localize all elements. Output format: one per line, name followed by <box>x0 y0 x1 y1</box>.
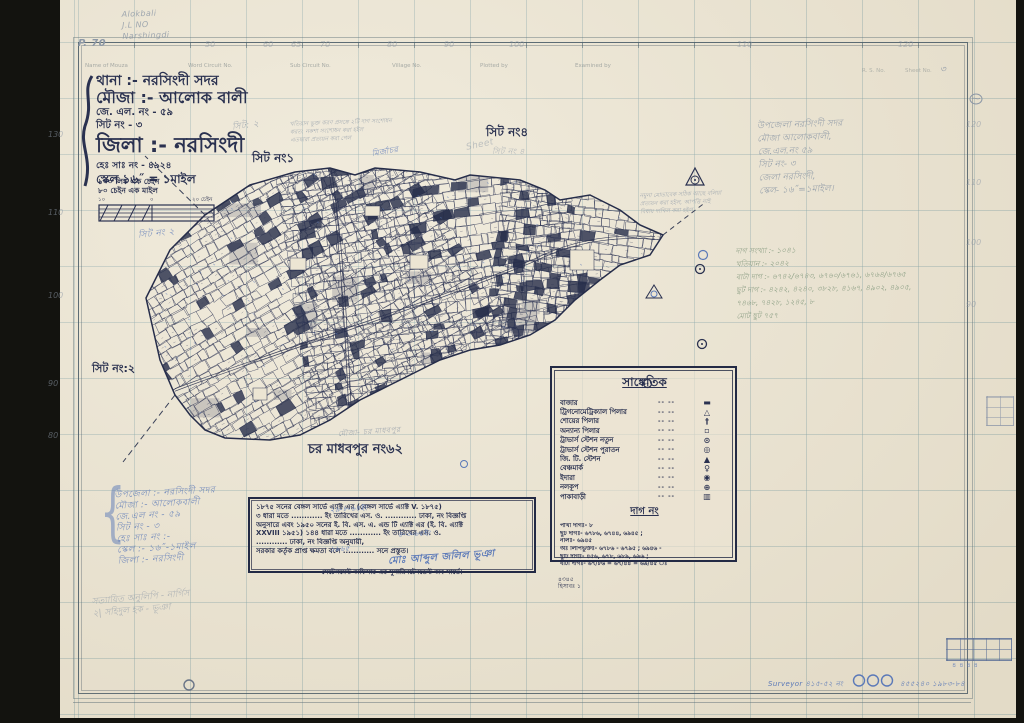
note-line-1: ৩ ধারা মতে ............ ইং তারিখের এস. ও… <box>256 512 528 521</box>
pencil-block-top-right: উপজেলা নরসিংদী সদরমৌজা আলোকবালী,জে.এল.নং… <box>757 118 845 199</box>
margin-number: 90 <box>48 379 58 388</box>
margin-number: 70 <box>320 40 330 49</box>
pencil-paragraph-1: খতিয়ান ভুক্ত করণ প্রসঙ্গে ২টি দাগ সংশোধ… <box>290 117 393 145</box>
traverse-station-icon <box>684 166 706 188</box>
note-line-4: ............ ঢাকা, নং বিজ্ঞপ্তি অনুযায়ী… <box>256 538 528 547</box>
margin-number: 130 <box>48 130 63 139</box>
corner-note-block: AlokbaliJ.L NONarshingdi <box>121 7 169 42</box>
pencil-block-bottom-left: উপজেলা :- নরসিংদী সদরমৌজা :- আলোকবালীজে.… <box>114 485 219 567</box>
map-path <box>123 395 175 462</box>
scanned-cadastral-map-sheet: { "colors":{"ink":"#2a3150","pencil":"#8… <box>0 0 1024 723</box>
circle-dot-station-icon <box>694 263 706 275</box>
margin-number: 60 <box>263 40 273 49</box>
margin-number: 100 <box>48 291 63 300</box>
legend-symbol-icon: † <box>696 417 718 426</box>
pencil-paragraph-2: নমুনা মোতাবেক সঠিক আছে বলিয়াপ্রত্যয়ন ক… <box>640 190 722 217</box>
corner-line-2: Narshingdi <box>122 29 169 42</box>
legend-dashes: -- -- <box>658 437 696 444</box>
legend-symbol-icon: △ <box>696 408 718 417</box>
title-line-2: জে. এল. নং - ৫৯ <box>96 106 248 119</box>
rs-no-label: R. S. No. <box>862 68 885 74</box>
legend-dashes: -- -- <box>658 418 696 425</box>
legend-dashes: -- -- <box>658 465 696 472</box>
legend-symbol-icon: ▬ <box>696 398 718 407</box>
page-number-pencil: P. 70 <box>78 38 106 49</box>
legend-dashes: -- -- <box>658 493 696 500</box>
margin-number: 100 <box>509 40 524 49</box>
legend-dashes: -- -- <box>658 484 696 491</box>
title-line-3: সিট নং - ৩ <box>96 119 248 132</box>
legend-plot-row-1: ছুট দাগঃ- ৬৭৮৬, ৬৭৪৪, ৬৯৪৫ ; <box>560 531 729 539</box>
legend-dashes: -- -- <box>658 474 696 481</box>
note-blue-fill-3: ১৯৬৫ <box>330 543 350 556</box>
title-flourish <box>80 74 96 194</box>
legend-dashes: -- -- <box>658 399 696 406</box>
blue-circles-trio-icon <box>852 673 896 688</box>
legend-plot-row-3: অঃ লিপিভুক্তঃ- ৬৭৮৬ - ৬৭৯৫ ; ৬৯৪৬ - <box>560 546 729 554</box>
blue-small-circle-icon <box>459 459 469 469</box>
header-cell-label: Word Circuit No. <box>188 63 232 69</box>
legend-symbol-icon: ◉ <box>696 473 718 482</box>
sheet-no-label: Sheet No. <box>905 68 932 74</box>
legend-plot-title: দাগ নং <box>560 504 729 521</box>
margin-number: 100 <box>966 238 981 247</box>
margin-number: 65 <box>291 40 301 49</box>
surveyor-note: Surveyor ৪১৫-৫২ নং <box>768 678 843 690</box>
pencil-brace: { <box>100 476 125 550</box>
corner-mini-grid <box>946 638 1012 661</box>
note-blue-fill-1: ২৯-৮-৬৪ইং <box>330 502 368 516</box>
map-path <box>145 156 205 215</box>
circle-dot-station2-icon <box>696 338 708 350</box>
legend-plot-row-5: বাটা দাগঃ- ৬৭/৮৬ = ৬৭/৪৪ = ৬৯/৪৫ ঃ <box>560 561 729 569</box>
legend-dashes: -- -- <box>658 409 696 416</box>
blue-circle-mark-icon <box>697 249 709 261</box>
bottom-left-ring-icon <box>182 678 196 692</box>
right-edge-mini-grid <box>986 396 1014 426</box>
year-note: ৪৫৫২৪০ ১৯৮৩-৮৪ <box>900 678 965 690</box>
title-line-1: মৌজা :- আলোক বালী <box>96 89 248 106</box>
margin-number: 110 <box>48 208 63 217</box>
triangle-station-icon <box>645 284 663 300</box>
note-line-3: XXVIII ১৯৫১) ১৪৪ ধারা মতে ............ ই… <box>256 529 528 538</box>
legend-label: পাকাবাড়ী <box>560 491 658 503</box>
legend-dashes: -- -- <box>658 446 696 453</box>
south-mouza-label: চর মাধবপুর নং৬২ <box>308 440 403 461</box>
header-cell-label: Village No. <box>392 63 421 69</box>
legend-dashes: -- -- <box>658 427 696 434</box>
legend-plot-row-2: নালঃ- ৬৯৪৫ <box>560 538 729 546</box>
margin-number: 90 <box>966 300 976 309</box>
legend-plot-rows: পাখা দাগঃ- ৮ছুট দাগঃ- ৬৭৮৬, ৬৭৪৪, ৬৯৪৫ ;… <box>560 523 729 569</box>
legend-symbol-icon: ⊙ <box>696 436 718 445</box>
sheet-no-value: ৩ <box>940 62 946 77</box>
header-cell-label: Name of Mouza <box>85 63 128 69</box>
legend-symbol-icon: ⊕ <box>696 483 718 492</box>
header-cell-label: Sub Circuit No. <box>290 63 331 69</box>
legend-box: সাঙ্কেতিক বাজার-- --▬ট্রিগনোমেট্রিক্যাল … <box>550 366 737 562</box>
margin-number: 110 <box>737 40 752 49</box>
circle-dot-station3-icon <box>642 378 653 389</box>
legend-plot-row-4: ছুটি দাগঃ- ৪৫৬, ৬৭৮, ৬৮৯, ৬৯৬ ; <box>560 554 729 562</box>
legend-symbol-icon: ▲ <box>696 455 718 464</box>
header-cell-label: Examined by <box>575 63 611 69</box>
margin-number: 50 <box>205 40 215 49</box>
legend-plot-row-0: পাখা দাগঃ- ৮ <box>560 523 729 531</box>
legend-symbol-icon: ▥ <box>696 492 718 501</box>
mini-grid-digits: ৪৪৪৪ <box>952 660 981 671</box>
note-line-0: ১৮৭৫ সনের বেঙ্গল সার্ভে এ্যাক্ট এর (বেঙ্… <box>256 503 528 512</box>
legend-symbol-icon: ◎ <box>696 445 718 454</box>
header-cell-label: Plotted by <box>480 63 508 69</box>
margin-number: 80 <box>387 40 397 49</box>
legend-row-10: পাকাবাড়ী-- --▥ <box>560 492 729 501</box>
margin-number: 90 <box>444 40 454 49</box>
note-blue-fill-2: ৪-৩-৬৫ইং <box>398 527 431 541</box>
legend-below-note: ৪৩৪৫ হিসাবঃ ১ <box>558 576 581 590</box>
note-line-2: অনুসারে এবং ১৯৫০ সনের ই. বি. এস. এ. এন্ড… <box>256 521 528 530</box>
margin-number: 110 <box>966 178 981 187</box>
pencil-scribble-circle-icon <box>968 92 984 106</box>
margin-number: 80 <box>48 431 58 440</box>
title-line-0: থানা :- নরসিংদী সদর <box>96 74 248 89</box>
legend-rows: বাজার-- --▬ট্রিগনোমেট্রিক্যাল পিলার-- --… <box>560 398 729 501</box>
legend-symbol-icon: ♀ <box>696 464 718 473</box>
legend-symbol-icon: ▫ <box>696 426 718 435</box>
legend-dashes: -- -- <box>658 456 696 463</box>
margin-number: 120 <box>898 40 913 49</box>
pencil-block-mid-right: দাগ সংখ্যা :- ১০৪১খতিয়ান :- ২০৪২বাটা দা… <box>735 241 912 322</box>
margin-number: 120 <box>966 120 981 129</box>
sheet-frame-bottom-line <box>73 702 971 703</box>
